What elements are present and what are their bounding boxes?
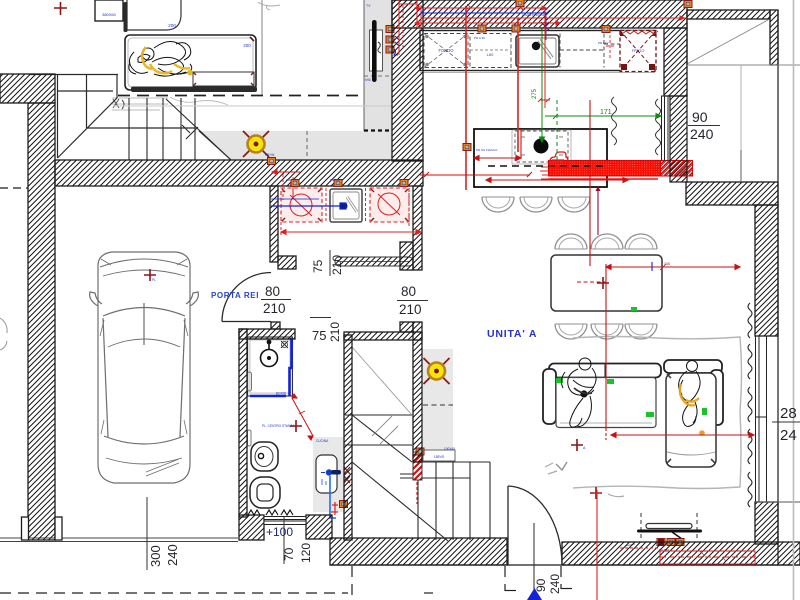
svg-text:90: 90 (692, 109, 708, 125)
svg-text:75: 75 (312, 328, 326, 343)
svg-text:240: 240 (548, 574, 562, 594)
svg-text:BOX90: BOX90 (276, 392, 287, 396)
svg-text:80: 80 (401, 284, 416, 299)
svg-text:+100: +100 (266, 525, 293, 539)
svg-text:120: 120 (299, 543, 313, 563)
svg-text:185VS: 185VS (434, 455, 445, 459)
svg-text:345: 345 (664, 262, 670, 266)
svg-text:24: 24 (780, 427, 797, 444)
svg-text:171: 171 (600, 109, 612, 116)
svg-text:90: 90 (534, 578, 548, 592)
svg-text:210: 210 (330, 255, 344, 275)
svg-text:PR A 30: PR A 30 (474, 36, 485, 40)
svg-text:L60: L60 (487, 52, 494, 57)
svg-text:PR+W: PR+W (265, 153, 274, 157)
svg-text:PR LAV: PR LAV (598, 41, 608, 45)
svg-text:CUCINA: CUCINA (316, 439, 329, 443)
svg-text:LAVASTOVIGLIE: LAVASTOVIGLIE (522, 13, 545, 17)
svg-text:PL: PL (152, 278, 156, 282)
svg-text:210: 210 (399, 302, 422, 317)
svg-text:200: 200 (168, 23, 176, 28)
svg-text:PR+INT: PR+INT (330, 178, 341, 182)
svg-text:FRIGO: FRIGO (632, 48, 645, 53)
svg-text:28: 28 (780, 405, 797, 422)
svg-text:h90: h90 (365, 78, 371, 82)
svg-text:200: 200 (243, 43, 251, 48)
svg-text:300: 300 (148, 545, 163, 567)
svg-text:75: 75 (311, 259, 325, 273)
svg-text:275: 275 (532, 88, 538, 99)
svg-text:PR SU FIANCO: PR SU FIANCO (476, 148, 498, 152)
svg-text:240: 240 (690, 126, 714, 142)
svg-text:210: 210 (263, 301, 286, 316)
svg-text:80: 80 (265, 284, 280, 299)
svg-text:PORTA REI: PORTA REI (211, 291, 259, 300)
svg-text:380X60: 380X60 (102, 12, 117, 17)
svg-text:100X45: 100X45 (444, 447, 455, 451)
svg-text:FONDO: FONDO (438, 48, 454, 53)
svg-text:TV: TV (366, 4, 371, 8)
svg-text:210: 210 (328, 322, 342, 342)
svg-text:UNITA' A: UNITA' A (487, 328, 537, 340)
svg-text:PR L 60: PR L 60 (286, 178, 297, 182)
svg-text:240: 240 (165, 544, 180, 566)
